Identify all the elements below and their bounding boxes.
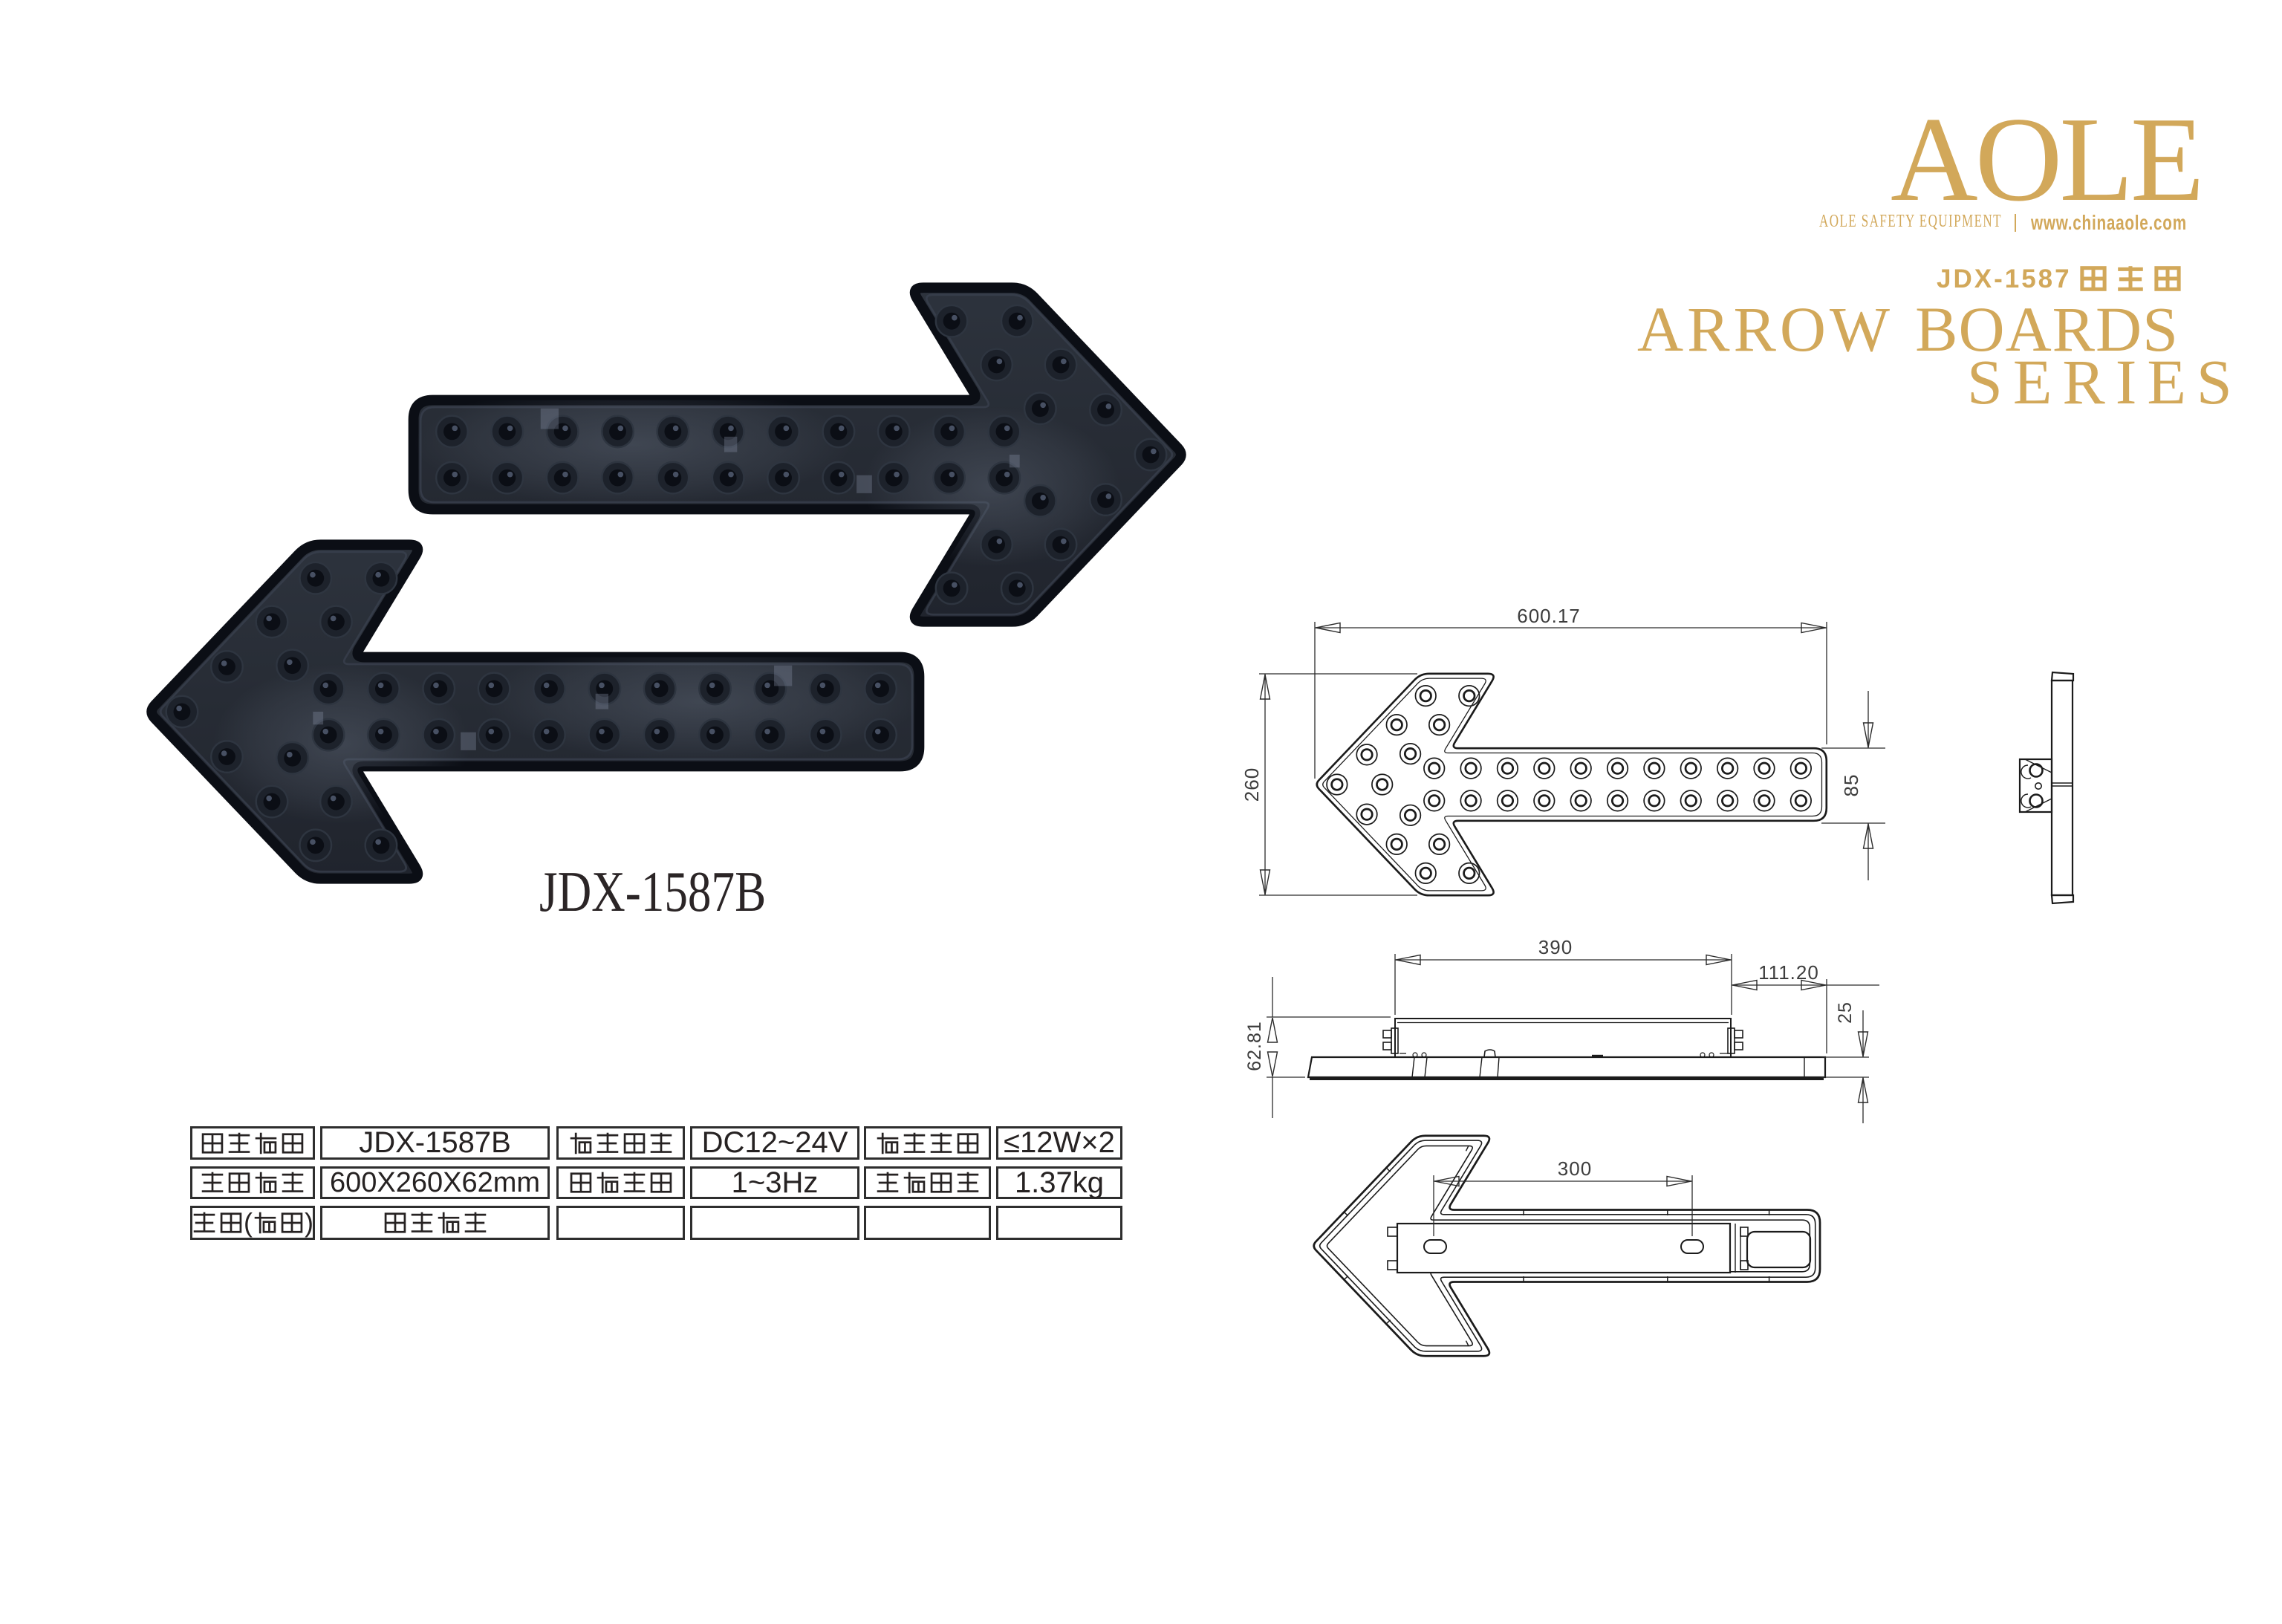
svg-text:300: 300 <box>1558 1157 1592 1180</box>
svg-text:25: 25 <box>1835 1001 1856 1024</box>
svg-text:85: 85 <box>1840 774 1862 797</box>
svg-text:260: 260 <box>1241 767 1263 802</box>
svg-text:600.17: 600.17 <box>1517 605 1581 627</box>
svg-text:62.81: 62.81 <box>1244 1021 1265 1071</box>
svg-text:390: 390 <box>1538 936 1573 958</box>
svg-text:111.20: 111.20 <box>1758 961 1819 984</box>
